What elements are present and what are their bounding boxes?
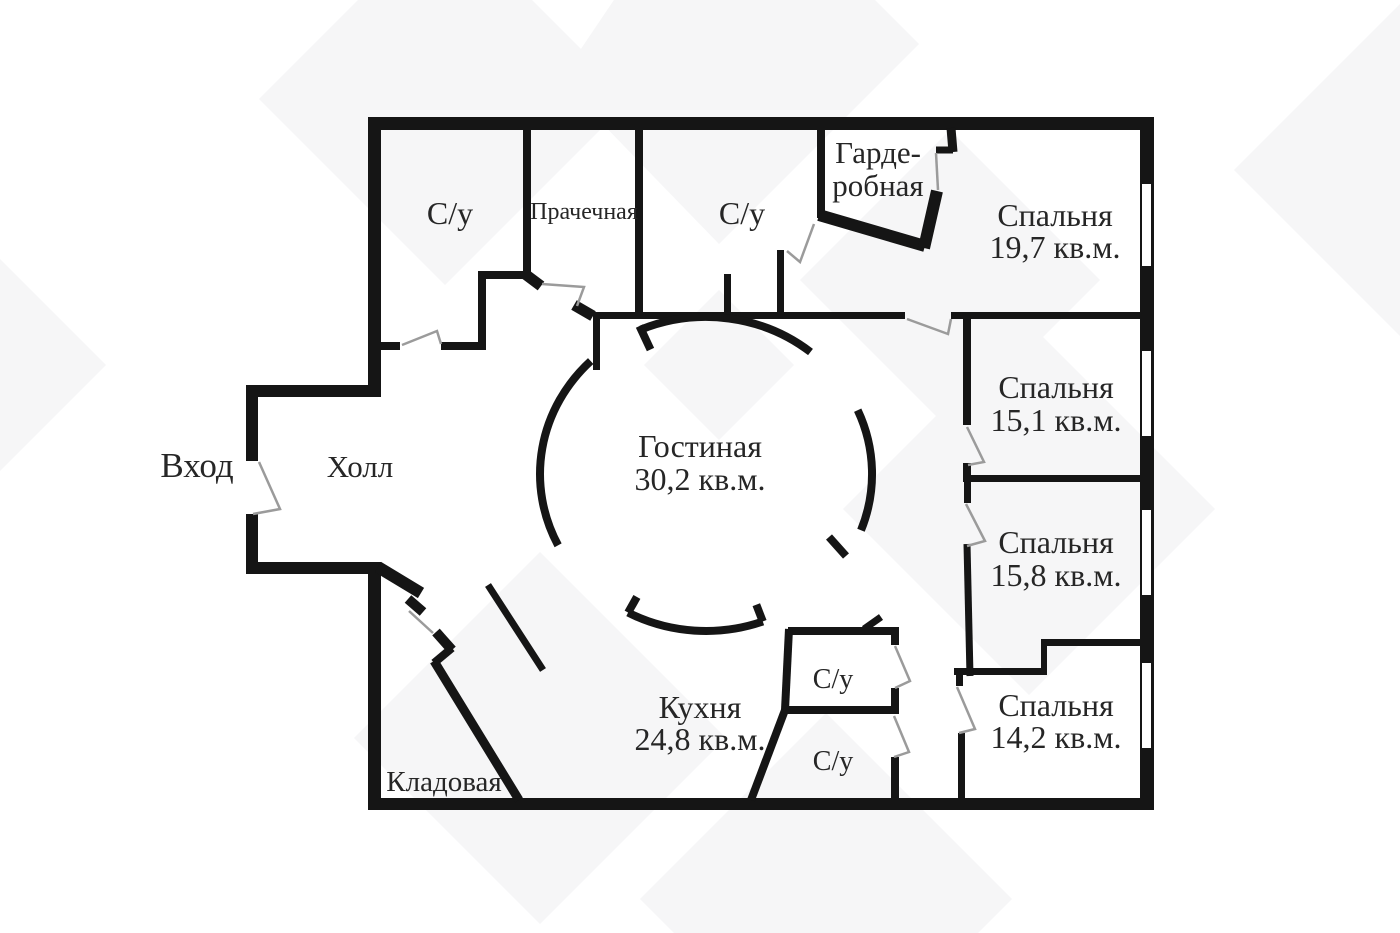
svg-text:Кладовая: Кладовая — [386, 766, 501, 798]
svg-text:Прачечная: Прачечная — [530, 199, 638, 225]
svg-text:14,2 кв.м.: 14,2 кв.м. — [991, 719, 1122, 755]
svg-text:Спальня: Спальня — [997, 197, 1113, 233]
svg-text:Спальня: Спальня — [998, 524, 1114, 560]
svg-text:Холл: Холл — [327, 449, 393, 484]
svg-text:Гарде-: Гарде- — [835, 135, 921, 170]
svg-text:С/у: С/у — [719, 195, 765, 231]
svg-text:24,8 кв.м.: 24,8 кв.м. — [635, 721, 766, 757]
svg-text:Вход: Вход — [160, 446, 234, 485]
svg-text:С/у: С/у — [813, 664, 853, 695]
svg-text:Гостиная: Гостиная — [638, 428, 762, 464]
svg-text:19,7 кв.м.: 19,7 кв.м. — [990, 229, 1121, 265]
svg-text:Спальня: Спальня — [998, 687, 1114, 723]
svg-text:С/у: С/у — [427, 195, 473, 231]
svg-text:15,1 кв.м.: 15,1 кв.м. — [991, 402, 1122, 438]
svg-text:15,8 кв.м.: 15,8 кв.м. — [991, 557, 1122, 593]
svg-text:С/у: С/у — [813, 746, 853, 777]
svg-text:Кухня: Кухня — [659, 689, 742, 725]
svg-text:робная: робная — [832, 168, 923, 203]
svg-text:30,2 кв.м.: 30,2 кв.м. — [635, 461, 766, 497]
svg-text:Спальня: Спальня — [998, 369, 1114, 405]
